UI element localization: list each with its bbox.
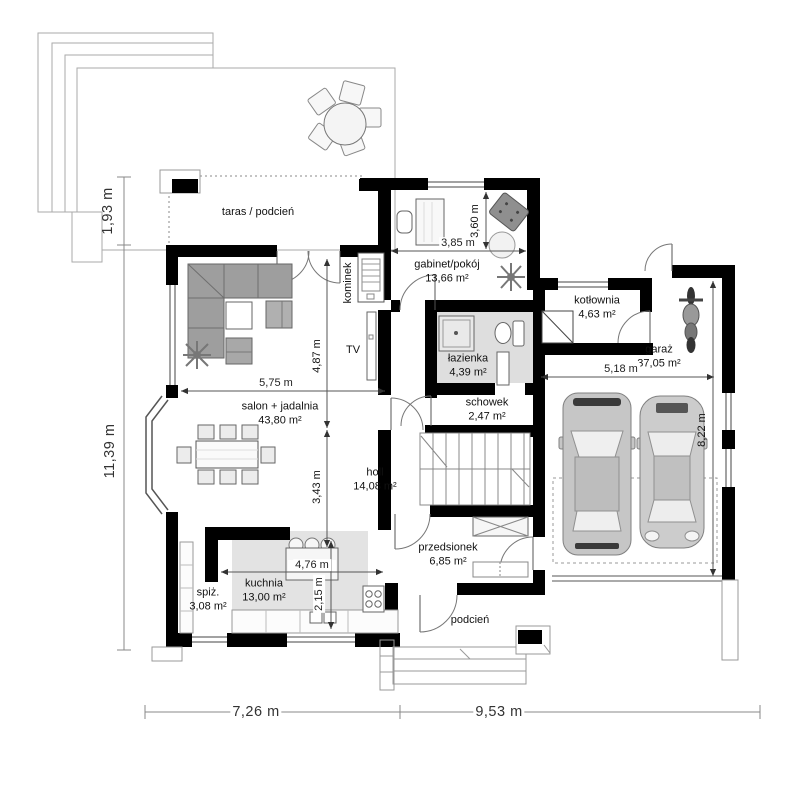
room-label-spiz: spiż. 3,08 m² <box>189 586 226 614</box>
boiler <box>542 311 573 343</box>
room-area: 13,00 m² <box>242 591 285 605</box>
gabinet-window <box>428 178 484 190</box>
garage-window-b <box>726 449 731 487</box>
dim-value: 1,93 m <box>100 187 116 234</box>
bottom-window-a <box>192 637 227 642</box>
sink <box>310 612 322 623</box>
dim-garaz-width: 5,18 m <box>602 363 640 377</box>
room-name: salon + jadalnia <box>242 400 319 412</box>
plant-gabinet <box>497 263 525 291</box>
floor-plan: taras / podcień gabinet/pokój 13,66 m² k… <box>0 0 799 801</box>
room-name: kuchnia <box>245 577 283 589</box>
dim-value: 3,60 m <box>469 204 481 238</box>
dim-value: 5,75 m <box>257 377 295 389</box>
bay-window <box>146 396 168 514</box>
terrace-pillar <box>160 170 200 193</box>
kotlownia-garage-door <box>618 311 650 343</box>
salon-left-window <box>166 285 178 385</box>
room-name: taras / podcień <box>222 206 294 218</box>
tv-console <box>367 312 376 380</box>
dim-terrace-depth: 1,93 m <box>99 187 117 234</box>
plan-graphics <box>0 0 799 801</box>
room-name: schowek <box>466 396 509 408</box>
lounge-chair <box>488 192 529 232</box>
room-area: 13,66 m² <box>414 272 479 286</box>
room-label-schowek: schowek 2,47 m² <box>466 396 509 424</box>
dim-salon-depth-a: 4,87 m <box>311 339 325 373</box>
entry-steps <box>152 626 550 690</box>
dining-set <box>177 425 275 484</box>
motorcycle <box>679 287 703 353</box>
armchair <box>266 301 292 328</box>
dim-house-width-left: 7,26 m <box>230 703 281 721</box>
hob <box>363 586 384 612</box>
room-name: łazienka <box>448 352 488 364</box>
dim-salon-depth-b: 3,43 m <box>311 470 325 504</box>
room-label-kuchnia: kuchnia 13,00 m² <box>242 577 285 605</box>
doormat <box>473 562 528 577</box>
dim-value: 2,15 m <box>313 575 325 613</box>
room-name: kotłownia <box>574 294 620 306</box>
room-name: garaż <box>645 343 673 355</box>
garage-door <box>552 576 722 581</box>
room-name: przedsionek <box>418 541 477 553</box>
stairs <box>420 433 530 505</box>
plant-salon <box>183 341 211 369</box>
dim-value: 11,39 m <box>102 424 118 479</box>
wardrobe-x <box>473 517 528 536</box>
przedsionek-fixtures <box>473 517 528 577</box>
salon-holl-door <box>391 398 423 430</box>
dim-kuchnia-width: 4,76 m <box>293 559 331 573</box>
bathroom-door-panel <box>497 352 509 385</box>
room-label-lazienka: łazienka 4,39 m² <box>448 352 488 380</box>
room-label-salon: salon + jadalnia 43,80 m² <box>242 400 319 428</box>
room-label-holl: holl 14,08 m² <box>353 466 396 494</box>
room-area: 3,08 m² <box>189 600 226 614</box>
dim-value: 4,87 m <box>311 339 323 373</box>
desk-chair <box>397 211 412 233</box>
pouf <box>226 338 252 364</box>
dim-salon-width: 5,75 m <box>257 377 295 391</box>
room-label-garaz: garaż 37,05 m² <box>637 343 680 371</box>
room-label-kotlownia: kotłownia 4,63 m² <box>574 294 620 322</box>
room-label-gabinet: gabinet/pokój 13,66 m² <box>414 258 479 286</box>
room-label-przedsionek: przedsionek 6,85 m² <box>418 541 477 569</box>
dim-gabinet-depth: 3,60 m <box>469 204 483 238</box>
room-name: kominek <box>342 263 354 304</box>
room-name: TV <box>346 344 360 356</box>
kotlownia-window <box>558 278 608 290</box>
dim-value: 8,22 m <box>696 413 708 447</box>
room-name: gabinet/pokój <box>414 258 479 270</box>
garage-window-a <box>726 393 731 430</box>
room-area: 4,39 m² <box>448 366 488 380</box>
fireplace <box>358 253 384 302</box>
garage-side-door <box>645 244 672 271</box>
dim-gabinet-width: 3,85 m <box>439 237 477 251</box>
room-area: 6,85 m² <box>418 555 477 569</box>
label-kominek: kominek <box>342 263 356 304</box>
schowek-door <box>401 396 431 426</box>
bottom-window-b <box>287 637 355 642</box>
dim-value: 3,85 m <box>439 237 477 249</box>
room-label-taras: taras / podcień <box>222 206 294 220</box>
room-name: podcień <box>451 614 490 626</box>
dining-table <box>196 441 258 468</box>
coffee-table <box>226 302 252 329</box>
garage-corner-strip <box>722 580 738 660</box>
room-name: holl <box>366 466 383 478</box>
dim-value: 3,43 m <box>311 470 323 504</box>
dim-value: 7,26 m <box>230 704 281 720</box>
dim-house-depth: 11,39 m <box>101 424 119 479</box>
dim-house-width-right: 9,53 m <box>473 703 524 721</box>
room-area: 43,80 m² <box>242 414 319 428</box>
room-area: 2,47 m² <box>466 410 509 424</box>
dim-garaz-depth: 8,22 m <box>696 413 710 447</box>
room-area: 37,05 m² <box>637 357 680 371</box>
room-name: spiż. <box>197 586 220 598</box>
dim-value: 4,76 m <box>293 559 331 571</box>
label-tv: TV <box>346 344 360 358</box>
dim-kuchnia-depth: 2,15 m <box>313 575 327 613</box>
dim-value: 9,53 m <box>473 704 524 720</box>
bottom-counter <box>232 610 398 633</box>
car-sedan <box>559 393 635 555</box>
dim-value: 5,18 m <box>602 363 640 375</box>
room-area: 14,08 m² <box>353 480 396 494</box>
room-label-podcien: podcień <box>451 614 490 628</box>
room-area: 4,63 m² <box>574 308 620 322</box>
round-rug <box>489 232 515 258</box>
